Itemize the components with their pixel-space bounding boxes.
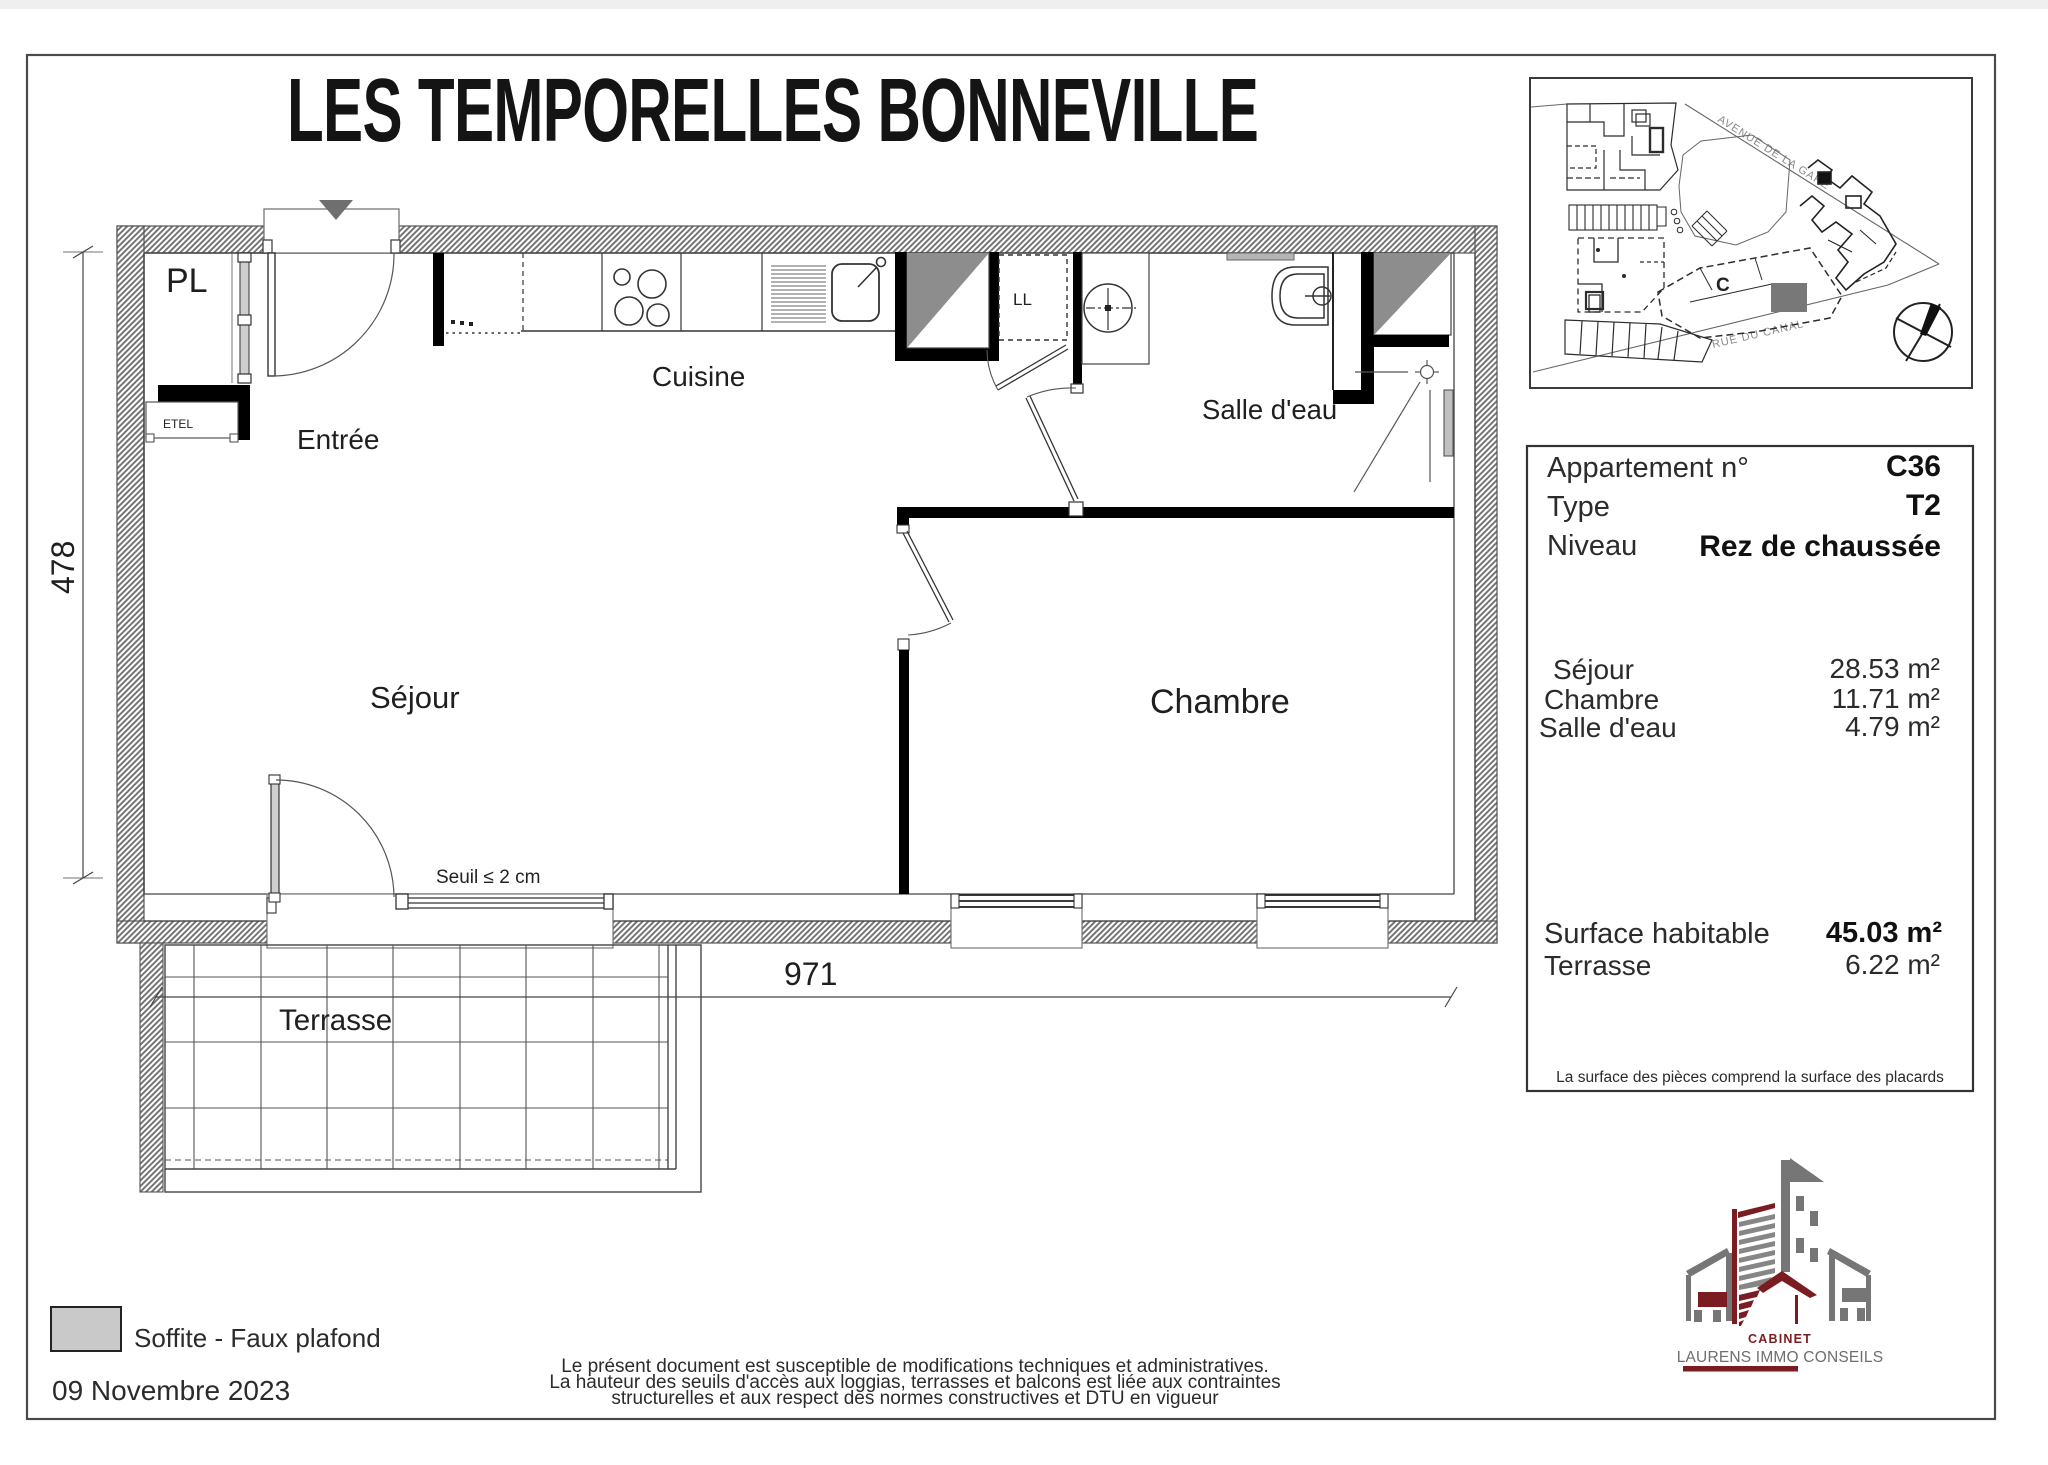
svg-text:09 Novembre 2023: 09 Novembre 2023 (52, 1375, 290, 1406)
svg-text:PL: PL (166, 262, 208, 300)
svg-text:LL: LL (1013, 290, 1032, 309)
svg-text:Type: Type (1547, 491, 1610, 523)
svg-text:LAURENS IMMO CONSEILS: LAURENS IMMO CONSEILS (1677, 1349, 1884, 1366)
svg-text:Séjour: Séjour (1553, 654, 1634, 685)
svg-text:C36: C36 (1886, 450, 1941, 483)
svg-text:6.22 m²: 6.22 m² (1845, 949, 1940, 980)
svg-text:C: C (1716, 275, 1730, 296)
svg-text:Entrée: Entrée (297, 424, 380, 455)
svg-text:Appartement n°: Appartement n° (1547, 452, 1749, 484)
svg-text:Seuil ≤ 2 cm: Seuil ≤ 2 cm (436, 867, 540, 888)
svg-text:Chambre: Chambre (1544, 684, 1659, 715)
svg-text:ETEL: ETEL (163, 417, 193, 431)
svg-text:La surface des pièces comprend: La surface des pièces comprend la surfac… (1556, 1069, 1944, 1086)
svg-text:T2: T2 (1906, 489, 1941, 522)
svg-text:Chambre: Chambre (1150, 683, 1290, 721)
svg-text:Surface habitable: Surface habitable (1544, 918, 1770, 950)
svg-text:Salle d'eau: Salle d'eau (1202, 394, 1337, 425)
svg-text:4.79 m²: 4.79 m² (1845, 711, 1940, 742)
svg-text:Rez de chaussée: Rez de chaussée (1699, 530, 1941, 563)
svg-text:Niveau: Niveau (1547, 530, 1637, 562)
svg-text:28.53 m²: 28.53 m² (1830, 653, 1941, 684)
svg-text:478: 478 (45, 541, 81, 594)
svg-text:45.03 m²: 45.03 m² (1826, 917, 1942, 949)
svg-text:Salle d'eau: Salle d'eau (1539, 712, 1677, 743)
svg-text:11.71 m²: 11.71 m² (1832, 683, 1940, 714)
svg-text:Séjour: Séjour (370, 680, 460, 715)
svg-text:structurelles et aux respect d: structurelles et aux respect des normes … (611, 1388, 1219, 1409)
svg-text:Cuisine: Cuisine (652, 361, 745, 392)
svg-text:Terrasse: Terrasse (279, 1004, 392, 1037)
svg-text:971: 971 (784, 956, 837, 992)
svg-text:LES TEMPORELLES BONNEVILLE: LES TEMPORELLES BONNEVILLE (287, 61, 1258, 161)
svg-text:Soffite - Faux plafond: Soffite - Faux plafond (134, 1323, 381, 1353)
svg-text:CABINET: CABINET (1748, 1332, 1812, 1346)
svg-text:Terrasse: Terrasse (1544, 950, 1651, 981)
